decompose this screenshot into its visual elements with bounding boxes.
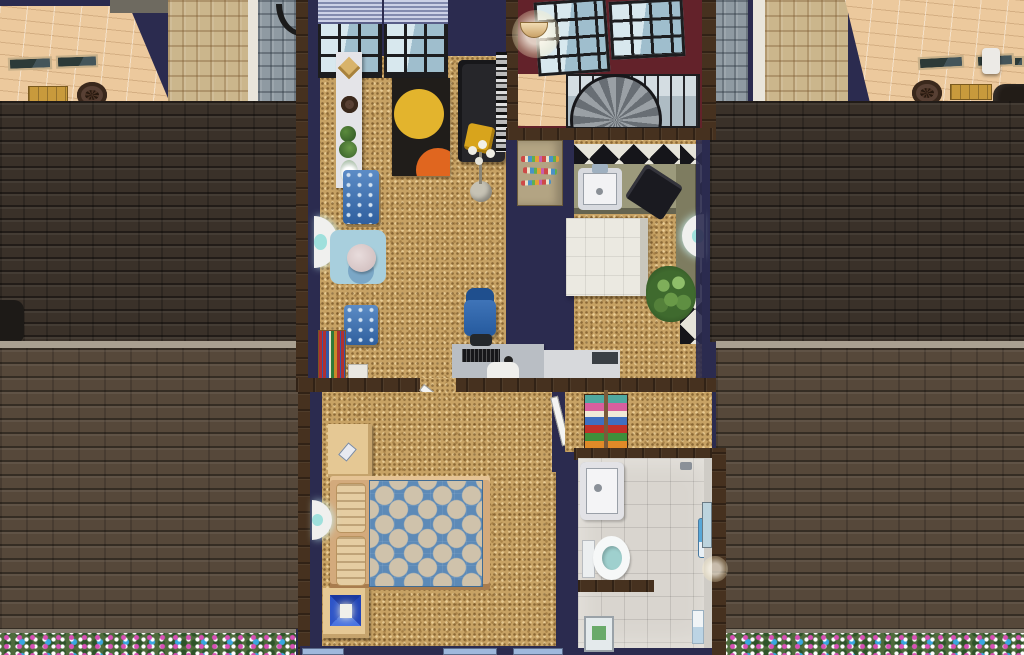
roof-lamp[interactable] [982,48,1000,74]
exterior-lamp-glow [702,556,728,582]
bathroom-outer-wall [712,452,726,655]
floor-lamp-bulb [475,157,483,165]
skylight[interactable] [8,56,52,71]
dining-chair[interactable] [343,170,379,224]
skylight[interactable] [918,55,965,70]
bathroom-sink[interactable] [580,462,624,520]
skylight[interactable] [56,54,98,68]
sink-drain [596,188,603,195]
office-chair-base [470,334,492,346]
south-window[interactable] [443,648,497,655]
left-terrace-parapet [110,0,172,13]
west-wall-wood [296,0,308,392]
right-pillar [753,0,765,101]
spiral-staircase [570,74,662,127]
sink-faucet [592,164,608,173]
window-blinds[interactable] [384,0,448,24]
stair-kitchen-wall [506,128,716,140]
bed-pillow [336,536,366,586]
pyramid-lamp-bulb [340,604,352,618]
flower-hedge-right[interactable] [726,633,1024,655]
fridge-alcove-wall [562,140,574,218]
bench[interactable] [28,86,68,102]
towel-shelf-pole [604,390,608,452]
kitchen-east-wall [696,140,706,392]
hand-towel[interactable] [692,610,704,644]
south-window[interactable] [513,648,563,655]
left-roof-upper [0,101,300,342]
bookshelf[interactable] [318,330,346,380]
dining-chair[interactable] [344,305,378,345]
sims-floorplan-view [0,0,1024,655]
toilet-water [602,546,622,570]
shower-divider-wall [578,580,654,592]
shower-door-pane [592,626,606,640]
left-roof-pipe [0,300,24,344]
potted-plant[interactable] [339,141,357,158]
bed-duvet [369,480,483,587]
rug-orange-circle [416,148,450,176]
middle-wall [296,378,716,392]
floor-lamp-bulb [468,146,477,155]
dining-table[interactable] [347,244,376,272]
printer-paper[interactable] [487,362,519,378]
right-stone-wall-tan [765,0,848,103]
stairwell-window[interactable] [609,0,686,60]
left-roof-lower [0,348,300,629]
spiral-staircase-clip[interactable] [570,74,662,127]
sink-faucet [594,484,602,492]
right-roof-upper [710,101,1024,342]
gear-collectible[interactable] [341,96,358,113]
floor-unit[interactable] [348,364,368,379]
east-wall-top [702,0,716,140]
keyboard[interactable] [462,349,500,362]
floor-lamp-bulb [478,140,487,149]
rug-yellow-circle [394,89,444,139]
bench[interactable] [950,84,992,100]
living-area-rug[interactable] [392,78,450,176]
shower-head [680,462,692,470]
fridge-magnets [521,156,559,162]
window-blinds[interactable] [318,0,382,24]
monitor[interactable] [592,352,618,364]
floor-lamp-bulb [486,149,495,158]
bathroom-window[interactable] [702,502,712,548]
kitchen-island[interactable] [566,218,648,296]
left-roof-gutter [0,341,300,348]
potted-plant[interactable] [340,126,356,142]
stair-landing-tile [518,74,568,126]
right-roof-gutter [716,341,1024,348]
left-stone-wall-tan [168,0,250,103]
bed-pillow [336,483,366,533]
potted-shrub[interactable] [646,266,696,322]
office-chair[interactable] [464,300,496,336]
right-roof-lower [716,348,1024,629]
west-wall-wood-lower [298,392,310,655]
south-window[interactable] [302,648,344,655]
flower-hedge-left[interactable] [0,633,296,655]
skylight[interactable] [1013,56,1024,67]
floor-lamp-base[interactable] [470,181,492,202]
